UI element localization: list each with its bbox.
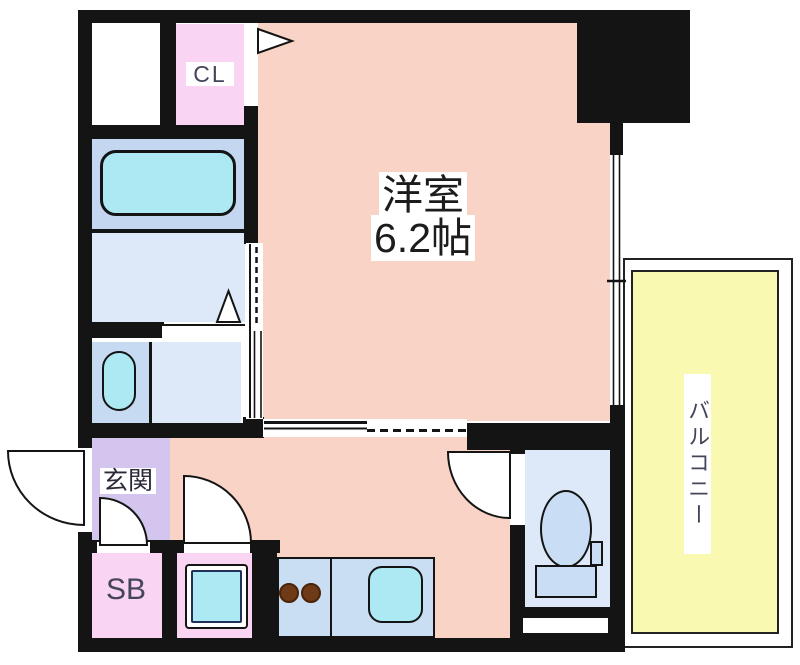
washroom-opening: [162, 324, 245, 338]
kitchen-sink: [368, 566, 423, 623]
main-room-name: 洋室: [379, 172, 467, 218]
gas-burner-right: [301, 583, 321, 603]
wall-below-top-rooms: [92, 125, 258, 139]
closet-doorway: [244, 25, 258, 106]
sliding-channel: [246, 243, 263, 419]
toilet-window: [523, 618, 608, 633]
room-washroom: [92, 233, 245, 322]
wall-stub-under-block: [610, 123, 623, 157]
wash-basin: [102, 351, 136, 411]
balcony-label: バルコニー: [684, 374, 711, 554]
window-channel: [610, 155, 623, 405]
wall-kitchen-divider: [252, 545, 277, 638]
closet-label: CL: [186, 62, 234, 86]
wall-void-closet-divider: [160, 23, 176, 126]
toilet-flush-box: [590, 541, 603, 566]
wall-washroom-bottom: [78, 322, 164, 338]
wall-mainroom-left: [244, 106, 258, 244]
washing-machine-pan-inner: [191, 570, 242, 623]
wall-band-right: [467, 423, 625, 450]
sliding-band: [263, 419, 467, 437]
toilet-doorway: [510, 452, 525, 527]
room-vanity-open-area: [152, 342, 241, 423]
wall-shoebox-divider: [162, 553, 177, 638]
front-doorway: [78, 446, 92, 534]
wall-band-stub: [243, 417, 264, 438]
toilet-bowl: [540, 490, 592, 568]
toilet-tank: [535, 565, 597, 598]
room-void: [92, 24, 160, 125]
kitchen-counter-divider: [330, 557, 332, 638]
main-room-size: 6.2帖: [371, 215, 475, 261]
shoebox-opening: [97, 540, 150, 553]
front-door-swing: [8, 451, 84, 525]
shoebox-label: SB: [98, 574, 154, 606]
wall-vanity-bottom: [78, 423, 264, 438]
laundry-opening: [184, 540, 250, 553]
wall-entry-bottom-b: [150, 540, 184, 553]
floorplan: CL 洋室 6.2帖 玄関 SB バルコニー: [0, 0, 800, 665]
wall-bath-divider: [92, 229, 245, 233]
wall-corner-block: [577, 10, 690, 123]
main-room-label: 洋室 6.2帖: [338, 174, 508, 260]
gas-burner-left: [279, 583, 299, 603]
entrance-label: 玄関: [100, 468, 156, 494]
bathtub: [100, 150, 236, 216]
